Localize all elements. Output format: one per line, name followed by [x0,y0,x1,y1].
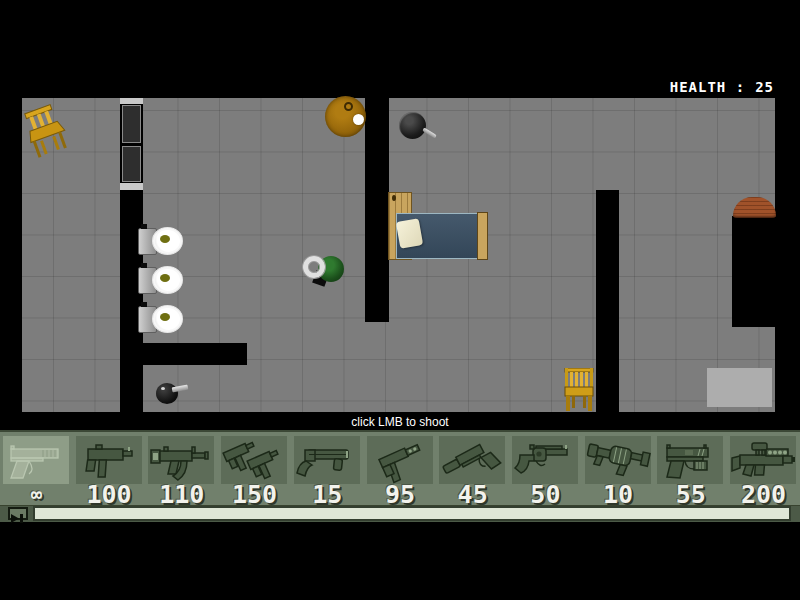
weapon-tile [367,436,433,484]
weapon-slot-4[interactable]: 150 [218,432,291,505]
weapon-tile [585,436,651,484]
bed [388,192,487,258]
ammo-count: 95 [364,482,437,507]
grenade-launcher-icon [585,436,651,484]
pan-handle [422,127,437,138]
weapon-slot-11[interactable]: 200 [727,432,800,505]
round-table [325,96,366,137]
ammo-count: 10 [582,482,655,507]
window-pane [122,146,141,182]
weapon-tile [512,436,578,484]
wood-knot [392,195,396,201]
game-stage: HEALTH :25 [0,0,800,600]
weapon-tile [294,436,360,484]
weapon-tile [221,436,287,484]
toilet [138,302,184,332]
chair-icon [563,368,597,412]
weapon-slot-3[interactable]: 110 [145,432,218,505]
p99-pistol-icon [657,436,723,484]
toilet-knob [141,263,147,268]
window-pane [122,105,141,143]
weapon-slot-7[interactable]: 45 [436,432,509,505]
hint-text: click LMB to shoot [0,415,800,429]
bed-pillow [396,218,423,249]
silenced-pistol-icon [439,436,505,484]
ammo-count: 15 [291,482,364,507]
health-value: 25 [755,79,774,95]
cup [344,102,353,111]
weapon-tile [76,436,142,484]
weapon-tile [730,436,796,484]
gray-rug [707,368,772,407]
wall-lower-horizontal [143,343,247,365]
weapon-tile [148,436,214,484]
chair-bottom-right [563,368,597,412]
weapon-slot-10[interactable]: 55 [654,432,727,505]
toilet-hole [160,313,170,321]
tec-9-icon [367,436,433,484]
wall-right-column [732,216,776,327]
weapon-slot-5[interactable]: 15 [291,432,364,505]
mac-10-icon [76,436,142,484]
weapon-slot-8[interactable]: 50 [509,432,582,505]
ammo-count: 200 [727,482,800,507]
skip-button[interactable] [8,507,28,520]
weapon-tile [439,436,505,484]
health-label: HEALTH : [670,79,745,95]
weapon-slot-2[interactable]: 100 [73,432,146,505]
toilet [138,263,184,293]
player-character [303,254,343,288]
toilet-hole [160,274,170,282]
desert-eagle-icon [3,436,69,484]
dual-uzi-icon [221,436,287,484]
weapon-tile [3,436,69,484]
toilet-knob [141,224,147,229]
pan-disc [399,112,426,139]
frying-pan [399,112,439,144]
ammo-count: ∞ [0,482,73,507]
ammo-count: 55 [654,482,727,507]
plate [353,114,364,125]
toilet [138,224,184,254]
ammo-count: 45 [436,482,509,507]
window-sill [120,98,143,104]
ammo-count: 100 [73,482,146,507]
bottom-strip [0,505,800,522]
bed-footboard [477,212,488,260]
progress-bar[interactable] [33,506,791,521]
sawn-off-shotgun-icon [294,436,360,484]
weapon-tile [657,436,723,484]
play-skip-icon [10,514,26,523]
scoped-rifle-icon [730,436,796,484]
wall-center-vertical [365,98,389,322]
glint [161,387,165,390]
pistol-pickup [156,380,192,406]
toilet-hole [160,235,170,243]
ammo-count: 150 [218,482,291,507]
weapon-slot-1[interactable]: ∞ [0,432,73,505]
ammo-count: 110 [145,482,218,507]
revolver-icon [512,436,578,484]
mp5-icon [148,436,214,484]
toilet-knob [141,302,147,307]
weapon-slot-6[interactable]: 95 [364,432,437,505]
player-ring [303,256,325,278]
wall-right-vertical [596,190,619,412]
window-sill [120,183,143,190]
ammo-count: 50 [509,482,582,507]
weapon-bar: ∞ 100 [0,430,800,505]
window-wall [120,98,143,190]
weapon-slot-9[interactable]: 10 [582,432,655,505]
health-display: HEALTH :25 [670,79,774,95]
